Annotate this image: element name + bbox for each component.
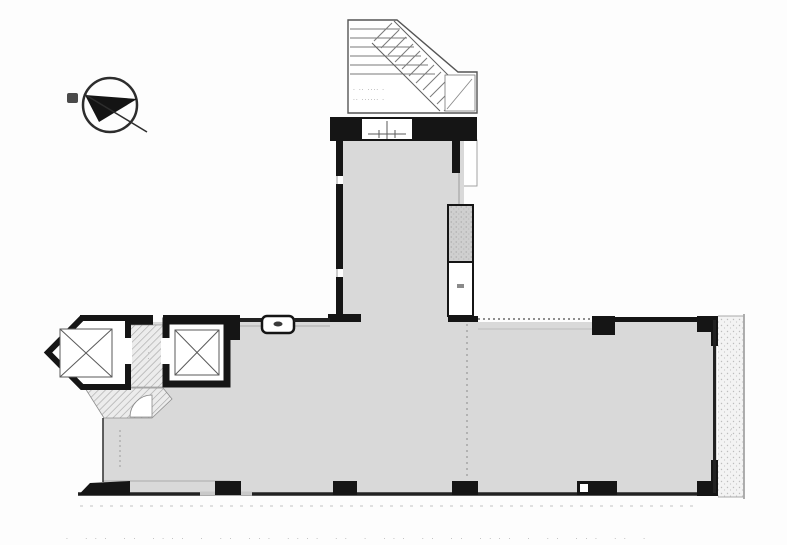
- stair-label-1: · ·· ···· ·: [353, 87, 385, 94]
- east-wall-and-balcony: · ·: [715, 314, 745, 499]
- column: [333, 481, 357, 495]
- elevator-right: [161, 321, 227, 384]
- floor-plan-drawing: · ·· ···· · ·· ······ ·: [0, 0, 787, 545]
- elevator-hall: · · ·: [130, 325, 163, 387]
- column: [78, 481, 130, 496]
- elevator-left-door: [123, 338, 132, 364]
- pipe-shaft-lower: [448, 262, 473, 316]
- staircase: · ·· ···· · ·· ······ ·: [348, 20, 477, 113]
- elevator-left: [48, 318, 132, 387]
- column: [592, 316, 615, 335]
- north-arrow-icon: [67, 78, 147, 132]
- caption-dots: · ··· ·· ···· · ·· ··· ···· ·· · ··· ·· …: [66, 536, 646, 543]
- elevator-right-door: [161, 338, 170, 364]
- column: [215, 481, 241, 495]
- elevator-hall-note: · · ·: [144, 346, 151, 361]
- balcony-note: · ·: [727, 428, 734, 437]
- upper-wing-room: [328, 117, 478, 340]
- stair-label-2: ·· ······ ·: [353, 97, 385, 104]
- balcony-strip: [718, 316, 744, 497]
- floor-plan-page: · ·· ···· · ·· ······ ·: [0, 0, 787, 545]
- column: [452, 481, 478, 495]
- pipe-shaft-upper: [448, 205, 473, 262]
